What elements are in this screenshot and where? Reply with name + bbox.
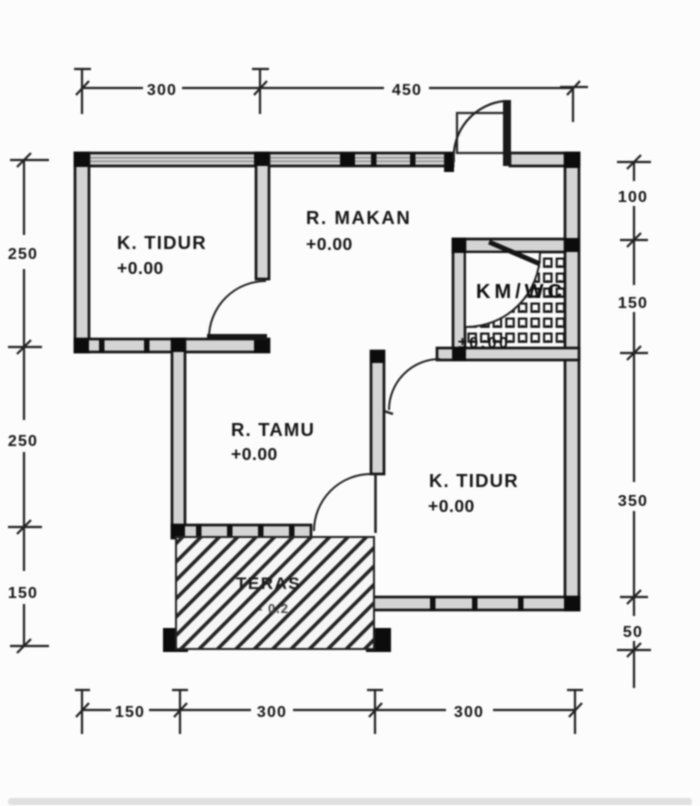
svg-text:150: 150 [618, 295, 648, 312]
svg-text:+0.00: +0.00 [306, 234, 353, 254]
svg-text:350: 350 [618, 493, 648, 510]
svg-text:K. TIDUR: K. TIDUR [429, 470, 519, 491]
svg-text:250: 250 [8, 433, 38, 450]
svg-text:R. MAKAN: R. MAKAN [306, 207, 411, 228]
svg-text:KM/WC: KM/WC [476, 281, 566, 303]
svg-text:+0.00: +0.00 [117, 258, 164, 278]
svg-text:+0.00: +0.00 [231, 444, 278, 464]
svg-text:R. TAMU: R. TAMU [231, 419, 315, 440]
svg-text:±0.00: ±0.00 [458, 335, 510, 352]
svg-text:300: 300 [147, 82, 177, 99]
svg-text:+0.00: +0.00 [428, 496, 475, 516]
svg-text:450: 450 [392, 82, 422, 99]
svg-text:100: 100 [618, 189, 648, 206]
svg-text:300: 300 [257, 704, 287, 721]
svg-text:TERAS: TERAS [236, 574, 301, 593]
svg-text:- 0.2: - 0.2 [258, 601, 289, 616]
svg-text:150: 150 [8, 585, 38, 602]
svg-text:K. TIDUR: K. TIDUR [117, 232, 207, 253]
svg-text:150: 150 [115, 704, 145, 721]
svg-text:250: 250 [8, 246, 38, 263]
svg-text:300: 300 [454, 704, 484, 721]
svg-text:50: 50 [623, 624, 643, 641]
